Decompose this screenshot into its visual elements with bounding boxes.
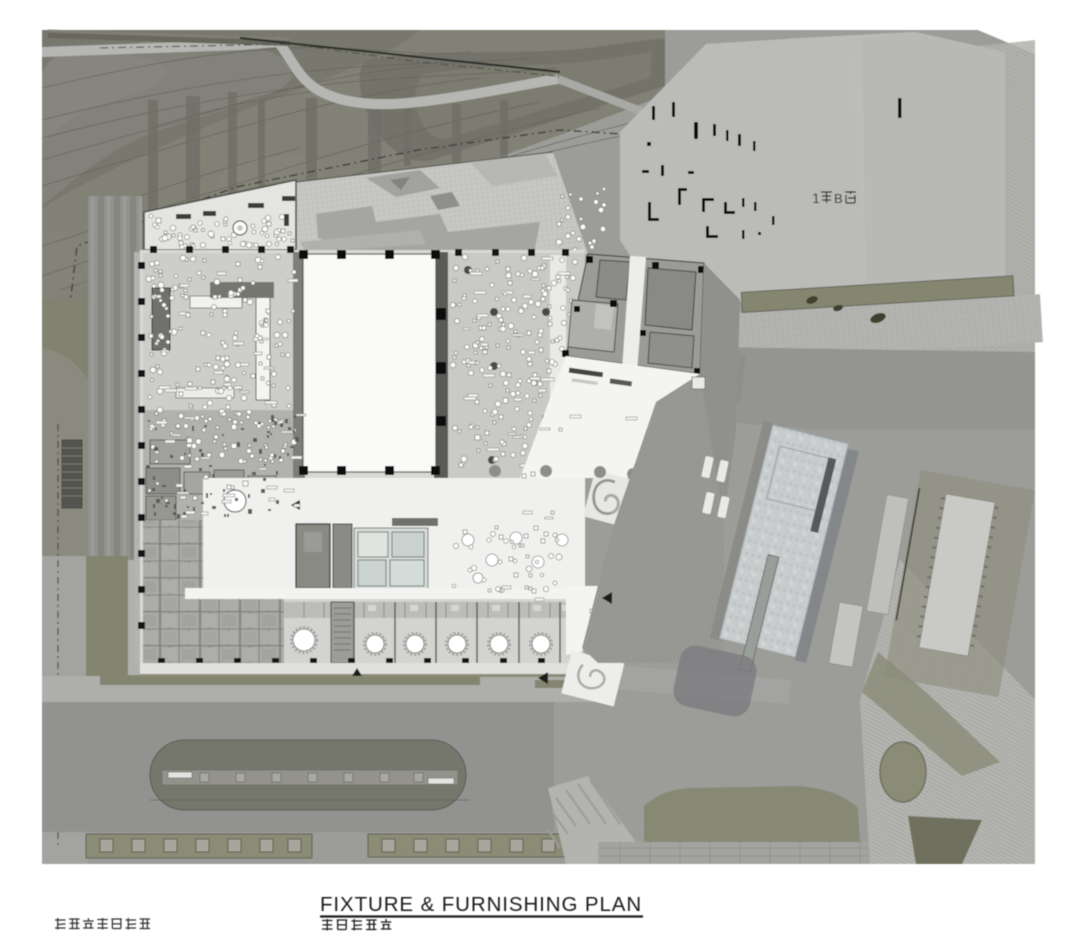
svg-text:B: B: [834, 191, 843, 206]
svg-text:FIXTURE & FURNISHING PLAN: FIXTURE & FURNISHING PLAN: [320, 893, 642, 916]
svg-text:1: 1: [812, 190, 820, 206]
